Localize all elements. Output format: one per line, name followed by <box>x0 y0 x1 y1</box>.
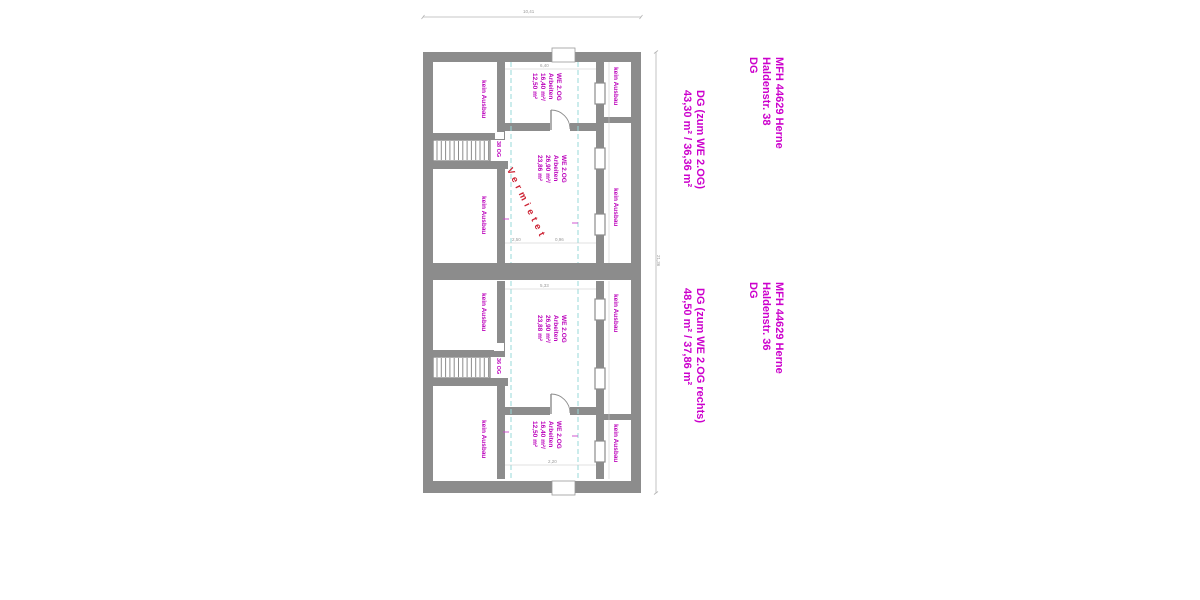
annotation-line: MFH 44629 Herne <box>772 282 785 374</box>
annotation-line: MFH 44629 Herne <box>772 57 785 149</box>
room-label-kein-ausbau: kein Ausbau <box>609 294 622 332</box>
wall-interior <box>433 350 505 357</box>
wall-niche <box>494 343 504 351</box>
wall-interior <box>433 161 508 169</box>
room-info-unit36-small: WE 2.OG Arbeiten 16,40 m²/ 12,50 m² <box>530 421 562 449</box>
wall-party-divider <box>423 263 641 280</box>
room-label-kein-ausbau: kein Ausbau <box>477 293 490 331</box>
room-info-line: WE 2.OG <box>554 73 562 101</box>
room-info-unit36-big: WE 2.OG Arbeiten 26,90 m²/ 23,88 m² <box>535 315 567 343</box>
wall-interior <box>433 378 508 386</box>
wall-interior <box>604 117 631 123</box>
door-unit38 <box>551 110 570 130</box>
wall-interior <box>433 133 505 140</box>
room-info-line: Arbeiten <box>546 421 554 449</box>
room-info-line: 16,40 m²/ <box>538 73 546 101</box>
room-label-kein-ausbau: kein Ausbau <box>609 67 622 105</box>
room-info-line: 12,50 m² <box>530 73 538 101</box>
room-info-unit38-small: WE 2.OG Arbeiten 16,40 m²/ 12,50 m² <box>530 73 562 101</box>
wall-interior <box>497 62 505 133</box>
annotation-line: 43,30 m² / 36,36 m² <box>680 90 693 189</box>
wall-interior <box>604 414 631 420</box>
annotation-line: 48,50 m² / 37,86 m² <box>680 288 693 423</box>
roof-window <box>595 368 605 389</box>
room-info-line: 23,86 m² <box>535 155 543 183</box>
room-info-line: Arbeiten <box>546 73 554 101</box>
dim-left: 2,50 <box>512 237 521 242</box>
room-info-line: WE 2.OG <box>559 155 567 183</box>
room-info-line: 23,88 m² <box>535 315 543 343</box>
wall-bottom <box>423 481 641 493</box>
room-label-kein-ausbau: kein Ausbau <box>477 420 490 458</box>
room-info-line: Arbeiten <box>551 315 559 343</box>
room-info-line: WE 2.OG <box>554 421 562 449</box>
annotation-line: DG (zum WE 2.OG rechts) <box>693 288 706 423</box>
wall-interior <box>497 386 505 479</box>
room-info-line: 12,50 m² <box>530 421 538 449</box>
dim-total-width: 10,41 <box>523 9 534 14</box>
door-swing-arc <box>551 110 570 129</box>
annotation-line: DG <box>746 57 759 149</box>
annotation-title-unit36: MFH 44629 Herne Haldenstr. 36 DG <box>746 282 785 374</box>
wall-interior <box>497 169 505 263</box>
wall-interior <box>497 281 505 350</box>
staircase-unit38 <box>433 140 490 161</box>
annotation-line: DG <box>746 282 759 374</box>
wall-interior <box>570 123 596 131</box>
wall-interior <box>505 123 550 131</box>
dim-room-big: 5,33 <box>540 283 549 288</box>
dim-total-height: 21,36 <box>656 255 661 266</box>
door-unit36 <box>551 394 570 414</box>
annotation-area-unit36: DG (zum WE 2.OG rechts) 48,50 m² / 37,86… <box>680 288 706 423</box>
roof-window <box>595 441 605 462</box>
room-info-line: 26,90 m²/ <box>543 155 551 183</box>
roof-window <box>595 148 605 169</box>
staircase-unit36 <box>433 357 490 378</box>
room-info-line: Arbeiten <box>551 155 559 183</box>
room-label-kein-ausbau: kein Ausbau <box>609 188 622 226</box>
stair-label-36: 36 OG <box>491 358 504 374</box>
room-info-line: WE 2.OG <box>559 315 567 343</box>
dim-bottom: 2,20 <box>548 459 557 464</box>
wall-interior <box>570 407 596 415</box>
wall-interior <box>505 407 550 415</box>
annotation-line: DG (zum WE 2.OG) <box>693 90 706 189</box>
room-info-line: 16,40 m²/ <box>538 421 546 449</box>
wall-niche <box>495 132 504 139</box>
door-swing-arc <box>551 394 570 413</box>
wall-top <box>423 52 641 62</box>
annotation-line: Haldenstr. 38 <box>759 57 772 149</box>
room-label-kein-ausbau: kein Ausbau <box>609 424 622 462</box>
chimney-bottom <box>552 481 575 495</box>
dim-right: 0,96 <box>555 237 564 242</box>
roof-window <box>595 83 605 104</box>
stair-label-38: 38 OG <box>491 141 504 157</box>
chimney-top <box>552 48 575 62</box>
dim-room-small: 6,40 <box>540 63 549 68</box>
room-info-unit38-big: WE 2.OG Arbeiten 26,90 m²/ 23,86 m² <box>535 155 567 183</box>
room-label-kein-ausbau: kein Ausbau <box>477 80 490 118</box>
floorplan-drawing <box>0 0 1200 600</box>
annotation-area-unit38: DG (zum WE 2.OG) 43,30 m² / 36,36 m² <box>680 90 706 189</box>
annotation-line: Haldenstr. 36 <box>759 282 772 374</box>
roof-window <box>595 299 605 320</box>
room-label-kein-ausbau: kein Ausbau <box>477 196 490 234</box>
room-info-line: 26,90 m²/ <box>543 315 551 343</box>
roof-window <box>595 214 605 235</box>
floorplan-page: 10,41 21,36 6,40 2,50 0,96 5,33 2,20 kei… <box>0 0 1200 600</box>
annotation-title-unit38: MFH 44629 Herne Haldenstr. 38 DG <box>746 57 785 149</box>
